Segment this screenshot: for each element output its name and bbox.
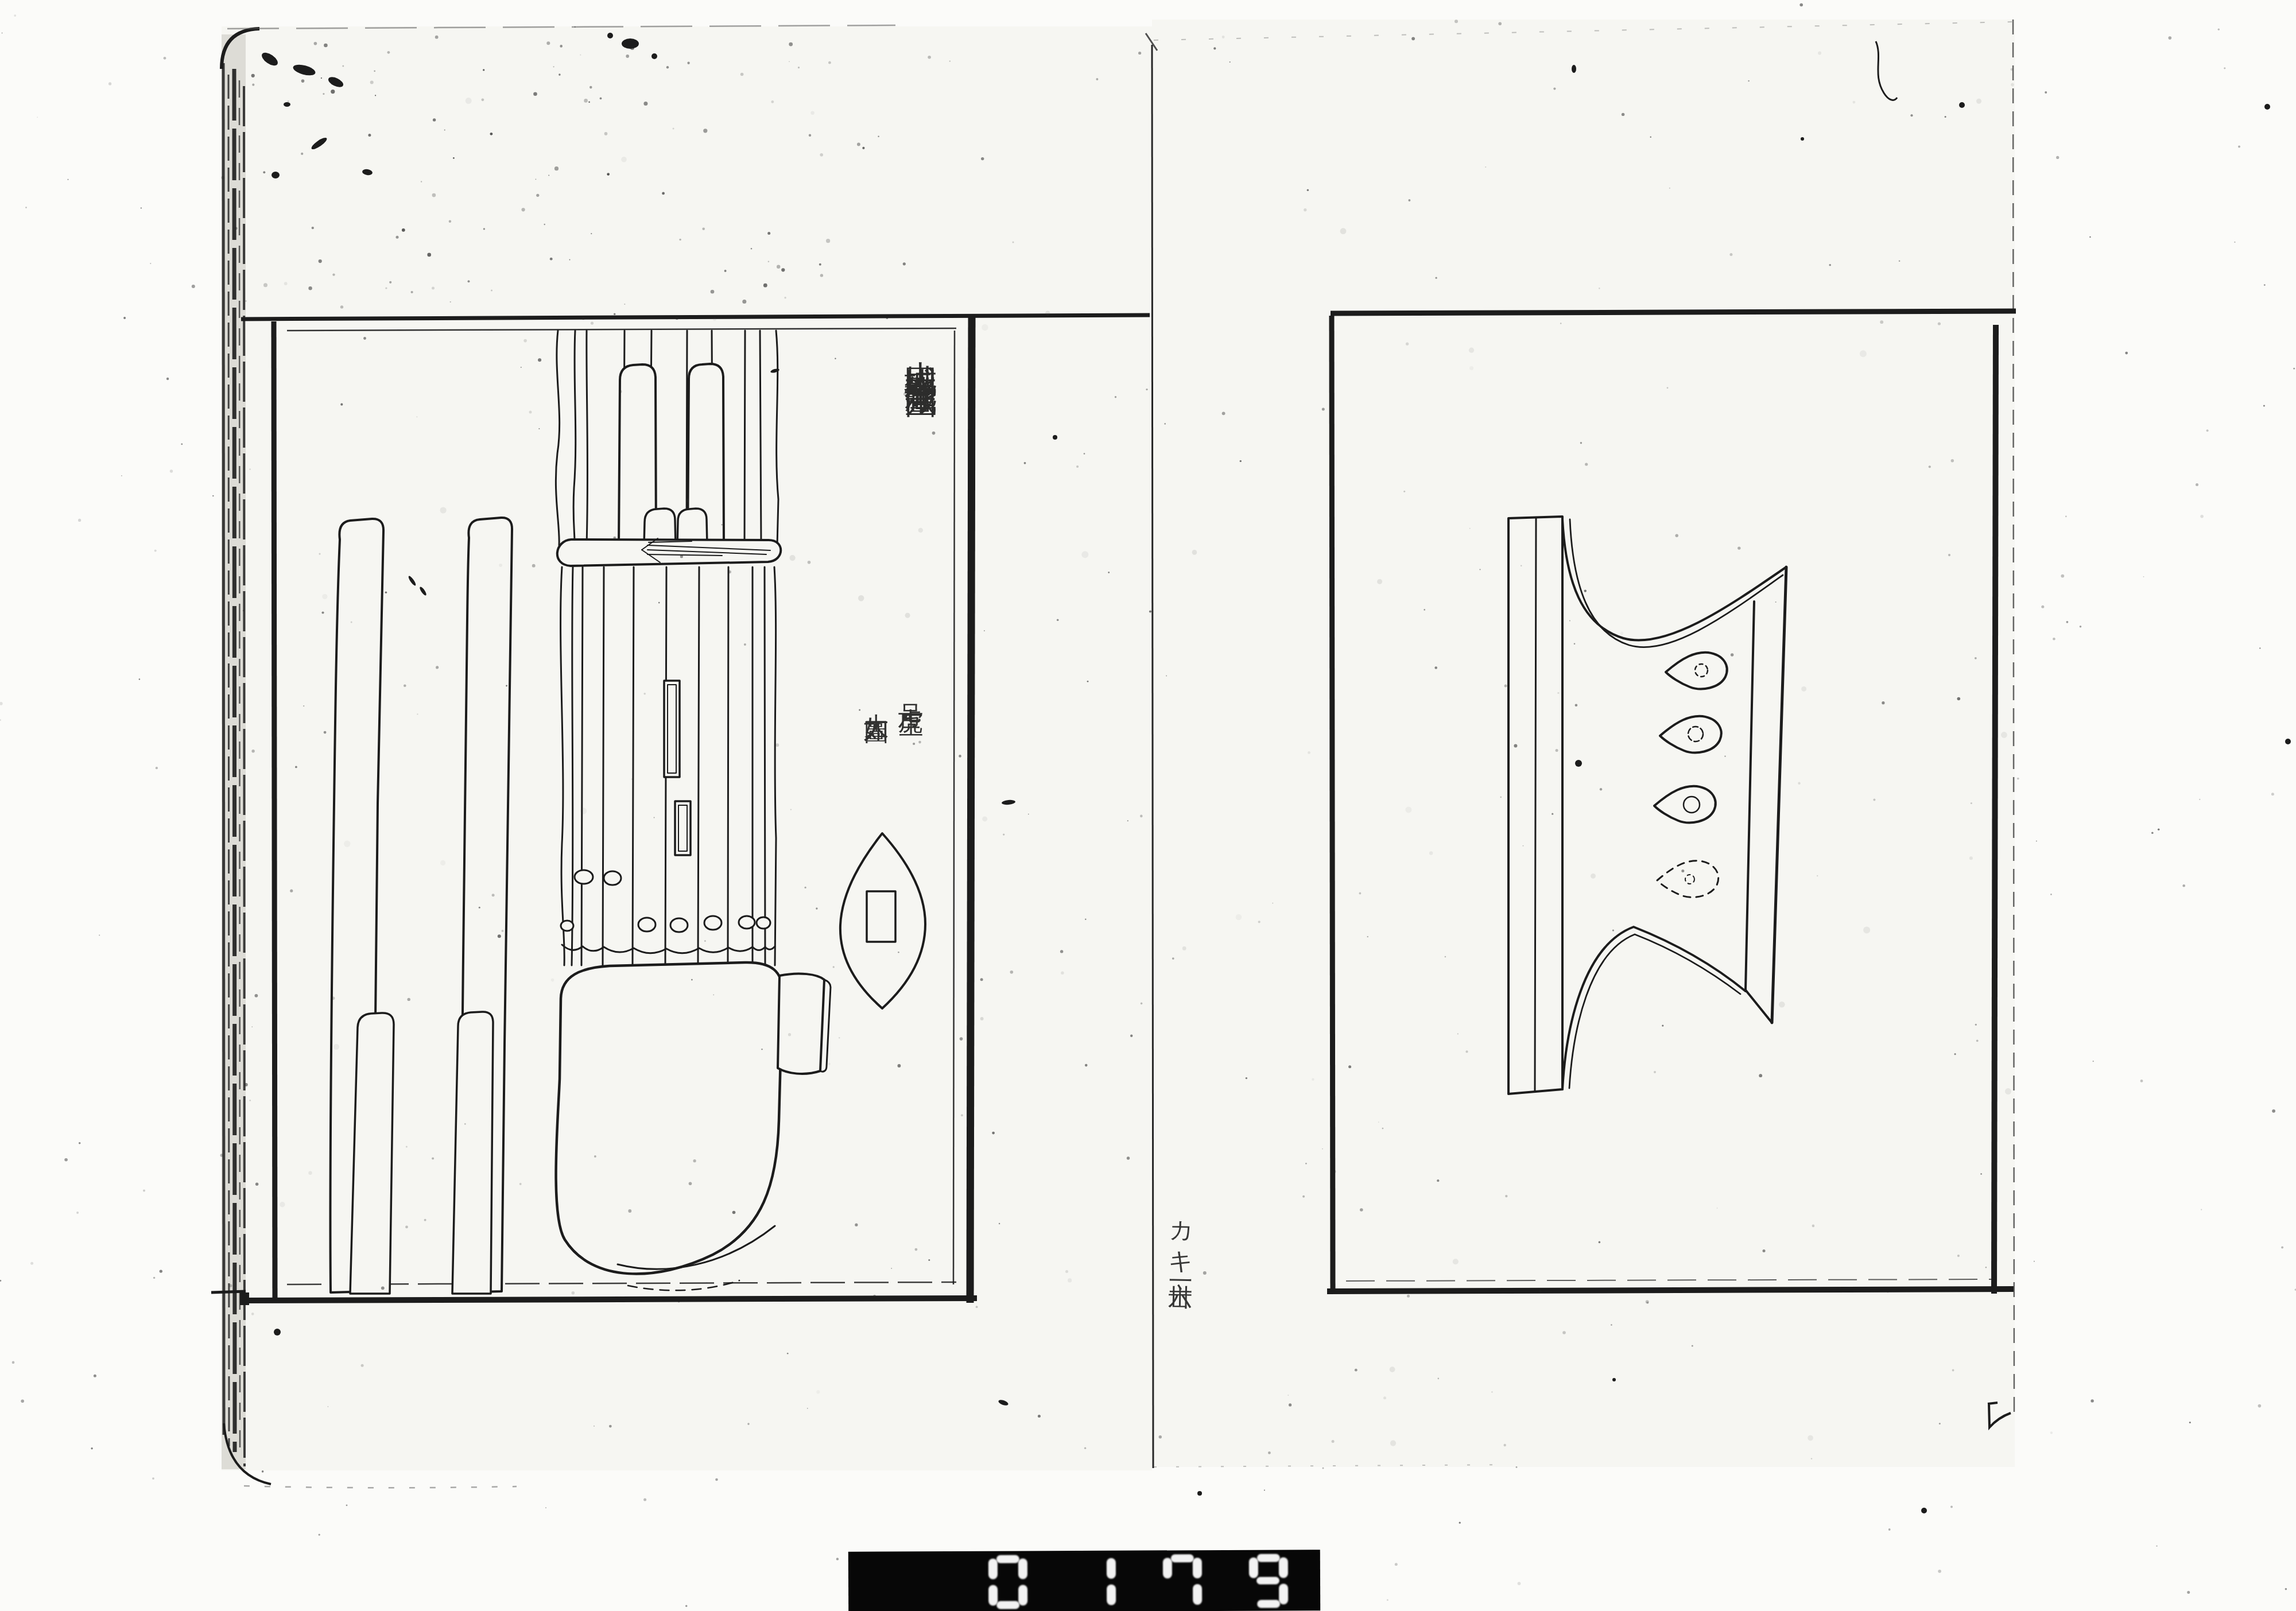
annotation-column-1: 号虎生: [894, 684, 928, 696]
scanned-book-page: 山城國本能寺藏笙圖 号虎生 大如圖 カキ六丗一: [0, 0, 2296, 1611]
title-vertical: 山城國本能寺藏笙圖: [899, 335, 943, 366]
scan-artwork: [0, 0, 2296, 1611]
annotation-column-2: 大如圖: [860, 693, 894, 705]
left-page-bottom-edge: [244, 1486, 517, 1488]
frame-counter-bar: [848, 1550, 1320, 1611]
gutter-note: カキ六丗一: [1165, 1204, 1198, 1271]
right-page-paper: [1152, 20, 2015, 1467]
frame-counter-digits: [848, 1550, 1320, 1611]
